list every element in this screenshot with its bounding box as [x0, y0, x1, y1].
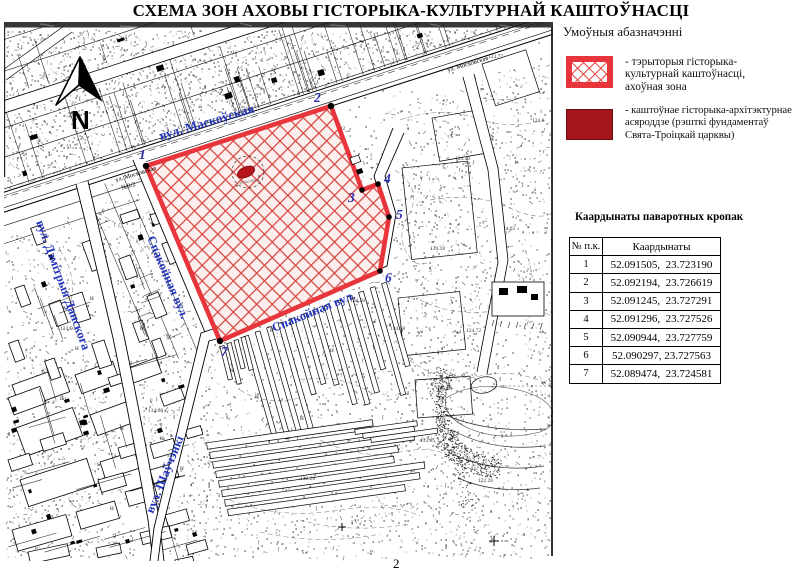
svg-text:124.72: 124.72: [466, 328, 481, 334]
svg-text:134.58: 134.58: [390, 326, 405, 332]
svg-text:н: н: [60, 394, 64, 402]
svg-text:133.85: 133.85: [420, 438, 435, 444]
svg-text:н: н: [330, 346, 334, 354]
svg-text:н: н: [110, 504, 114, 512]
svg-text:134.08: 134.08: [148, 408, 163, 414]
svg-text:н: н: [90, 294, 94, 302]
svg-text:5: 5: [396, 207, 403, 222]
svg-text:124.8: 124.8: [532, 118, 545, 124]
svg-text:6: 6: [385, 270, 392, 285]
svg-text:н: н: [255, 392, 259, 400]
svg-text:124.30: 124.30: [455, 156, 470, 162]
svg-text:н: н: [230, 366, 234, 374]
svg-text:3: 3: [347, 190, 355, 205]
svg-text:1: 1: [139, 147, 146, 162]
svg-text:4: 4: [383, 171, 391, 186]
svg-text:135.08: 135.08: [437, 386, 452, 392]
svg-text:н: н: [140, 324, 144, 332]
svg-text:н: н: [300, 414, 304, 422]
svg-text:134.18: 134.18: [430, 246, 445, 252]
svg-text:н: н: [180, 464, 184, 472]
svg-text:132.26: 132.26: [300, 476, 315, 482]
svg-text:N: N: [71, 105, 90, 135]
svg-text:2: 2: [313, 90, 321, 105]
svg-text:н: н: [160, 434, 164, 442]
svg-text:122.26: 122.26: [478, 478, 493, 484]
svg-text:н: н: [120, 424, 124, 432]
